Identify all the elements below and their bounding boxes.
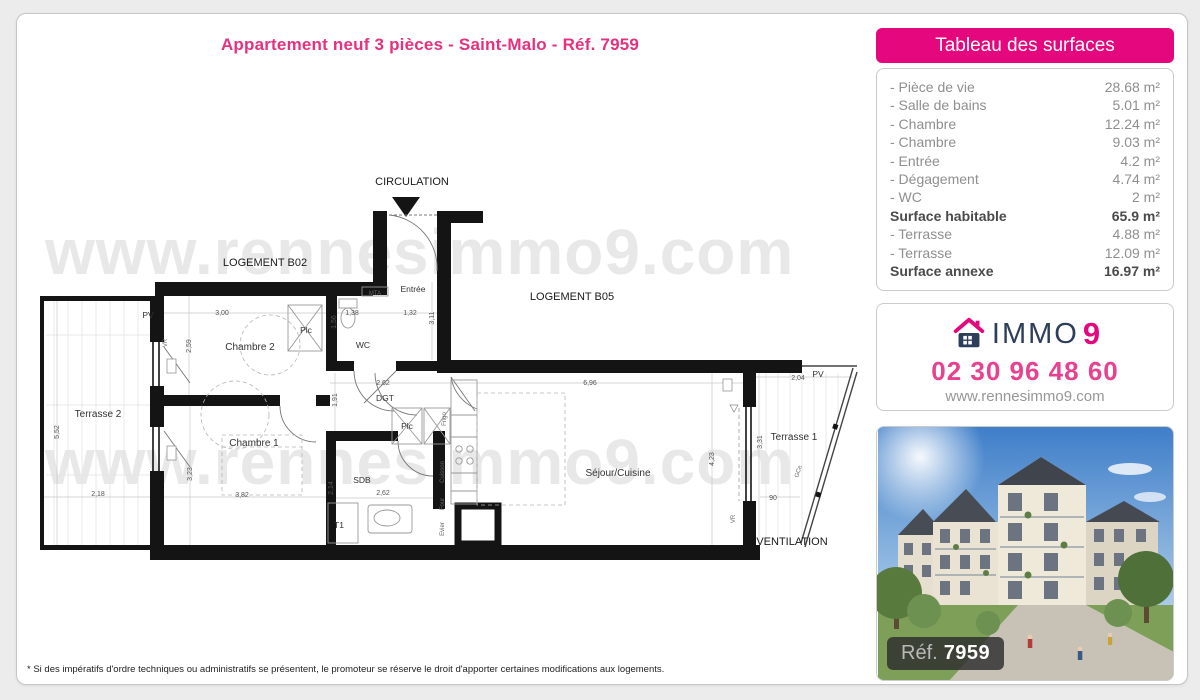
plan-label: 2,04 [791,375,805,382]
plan-label: Terrasse 1 [771,432,818,443]
row-label: Surface annexe [890,262,994,280]
table-row: - Pièce de vie28.68 m² [890,78,1160,96]
entrance-arrow-icon [392,197,420,217]
row-label: - WC [890,188,922,206]
plan-label: Plc [300,325,313,335]
plan-label: Chambre 1 [229,438,279,449]
row-label: - Terrasse [890,225,952,243]
plan-label: GCe [794,464,804,478]
plan-label: LOGEMENT B02 [223,257,307,269]
plan-label: Frigo [442,412,448,426]
plan-label: 6,96 [583,380,597,387]
row-value: 4.2 m² [1120,152,1160,170]
row-label: - Pièce de vie [890,78,975,96]
plan-label: 90 [769,495,777,502]
plan-label: 3,82 [235,492,249,499]
plan-label: T1 [334,520,344,530]
table-row: - Entrée4.2 m² [890,152,1160,170]
plan-label: Chambre 2 [225,342,275,353]
brand-9: 9 [1083,316,1100,352]
table-row: - WC2 m² [890,188,1160,206]
terrace1-railing [801,366,857,547]
plan-label: 3,23 [187,467,194,481]
plan-label: 2,14 [328,481,335,495]
row-value: 12.09 m² [1105,244,1160,262]
table-row: - Chambre12.24 m² [890,115,1160,133]
row-value: 4.88 m² [1113,225,1160,243]
plan-label: Terrasse 2 [75,409,122,420]
duct-shaft [458,506,498,544]
website-link[interactable]: www.rennesimmo9.com [877,388,1173,405]
row-value: 12.24 m² [1105,115,1160,133]
row-value: 2 m² [1132,188,1160,206]
plan-label: Entrée [400,284,425,294]
sidebar: Tableau des surfaces - Pièce de vie28.68… [876,28,1174,681]
plan-label: 3,00 [215,310,229,317]
plan-label: MTA [369,291,381,297]
plan-label: 1,56 [331,315,338,329]
plan-label: VENTILATION [756,536,827,548]
plan-label: 1,32 [403,310,417,317]
row-label: - Dégagement [890,170,979,188]
plan-label: PV [812,369,824,379]
plan-label: 3,11 [429,311,436,324]
row-label: - Entrée [890,152,940,170]
plan-label: 1,91 [332,393,339,407]
plan-label: 5,52 [54,425,61,439]
plan-label: 2,18 [91,491,105,498]
agency-card: IMMO9 02 30 96 48 60 www.rennesimmo9.com [876,303,1174,411]
table-row: - Dégagement4.74 m² [890,170,1160,188]
plan-label: Four [440,498,446,510]
ref-value: 7959 [944,642,991,664]
plan-label: Evier [440,522,446,536]
terrace-grid [46,301,150,545]
page-title: Appartement neuf 3 pièces - Saint-Malo -… [30,35,830,55]
agency-logo: IMMO9 [877,314,1173,354]
surfaces-header: Tableau des surfaces [876,28,1174,63]
row-value: 65.9 m² [1112,207,1160,225]
floor-plan: CIRCULATIONLOGEMENT B02LOGEMENT B05VENTI… [30,165,860,573]
row-value: 5.01 m² [1113,96,1160,114]
plan-label: DGT [376,393,394,403]
phone-link[interactable]: 02 30 96 48 60 [877,356,1173,387]
plan-label: CIRCULATION [375,176,449,188]
table-row-total-habitable: Surface habitable65.9 m² [890,207,1160,225]
plan-label: PV [142,310,154,320]
table-row: - Terrasse4.88 m² [890,225,1160,243]
row-label: Surface habitable [890,207,1007,225]
plan-label: 2,62 [376,490,390,497]
plan-label: Séjour/Cuisine [585,468,650,479]
plan-label: VR [731,514,737,523]
immo9-house-icon [950,315,988,353]
table-row: - Salle de bains5.01 m² [890,96,1160,114]
footnote: * Si des impératifs d'ordre techniques o… [27,664,664,675]
ref-label: Réf. [901,642,938,664]
row-value: 28.68 m² [1105,78,1160,96]
floor-plan-area: www.rennesimmo9.com www.rennesimmo9.com [30,165,860,573]
plan-label: 4,23 [709,452,716,466]
plan-label: Cuisson [440,461,446,483]
plan-label: 2,62 [376,380,390,387]
surfaces-table: - Pièce de vie28.68 m² - Salle de bains5… [876,68,1174,291]
plan-label: VR [163,338,169,347]
brand-immo: IMMO [992,318,1079,351]
plan-label: LOGEMENT B05 [530,291,614,303]
terrace1-grid [766,373,838,543]
plan-label: 3,31 [757,435,764,449]
plan-walls [40,211,802,560]
row-label: - Chambre [890,133,956,151]
plan-label: SDB [353,475,371,485]
plan-label: WC [356,340,370,350]
row-value: 9.03 m² [1113,133,1160,151]
plan-label: 2,59 [186,339,193,353]
surfaces-header-label: Tableau des surfaces [935,35,1115,57]
plan-label: Plc [401,421,414,431]
door-swings [164,215,477,476]
table-row: - Terrasse12.09 m² [890,244,1160,262]
table-row: - Chambre9.03 m² [890,133,1160,151]
row-label: - Chambre [890,115,956,133]
row-label: - Salle de bains [890,96,987,114]
row-value: 4.74 m² [1113,170,1160,188]
row-value: 16.97 m² [1104,262,1160,280]
row-label: - Terrasse [890,244,952,262]
table-row-total-annexe: Surface annexe16.97 m² [890,262,1160,280]
photo-ref-badge: Réf.7959 [887,637,1004,670]
plan-label: 1,38 [345,310,359,317]
building-photo: Réf.7959 [876,426,1174,681]
